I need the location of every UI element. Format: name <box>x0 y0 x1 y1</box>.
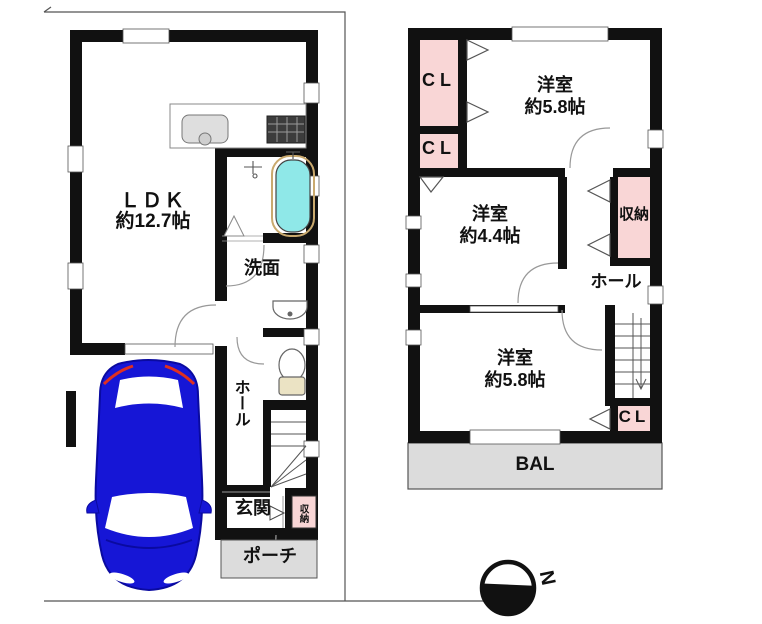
room-size-room-ne: 約5.8帖 <box>503 98 607 118</box>
bathroom <box>224 152 314 236</box>
room-label-storage-1f: 収納 <box>297 499 307 527</box>
floor2-stairs <box>615 313 650 398</box>
room-label-room-w: 洋室 <box>438 205 542 225</box>
room-label-room-ne: 洋室 <box>503 76 607 96</box>
floor1-stairs <box>271 422 306 487</box>
room-label-balcony: BAL <box>493 455 577 476</box>
bathtub <box>276 160 310 232</box>
bath-folding-door-marker <box>222 236 263 241</box>
room-label-closet-top: CL <box>418 71 460 91</box>
kitchen-counter <box>170 104 306 148</box>
room-label-closet-s: CL <box>614 408 654 427</box>
washbasin-icon <box>273 301 307 319</box>
room-size-room-s: 約5.8帖 <box>463 371 567 391</box>
floorplan-drawing <box>0 0 762 624</box>
shower-faucet-icon <box>244 161 262 178</box>
toilet-icon <box>279 349 305 395</box>
room-size-room-w: 約4.4帖 <box>438 227 542 247</box>
car-icon <box>87 360 212 590</box>
room-label-entrance: 玄関 <box>222 499 284 519</box>
room-label-room-s: 洋室 <box>463 349 567 369</box>
room-label-ldk: ＬＤＫ <box>88 190 218 212</box>
room-size-ldk: 約12.7帖 <box>88 212 218 233</box>
north-compass-icon <box>482 562 534 614</box>
room-label-closet-mid: CL <box>418 139 460 159</box>
room-label-hall-1f: ホール <box>231 366 249 440</box>
floor1-hall-door-opening <box>214 301 228 346</box>
floorplan-canvas: ＬＤＫ 約12.7帖 洗面 ホール 玄関 収納 ポーチ CL CL 洋室 約5.… <box>0 0 762 624</box>
room-label-washroom: 洗面 <box>228 259 296 279</box>
room-label-storage-2f: 収納 <box>616 207 652 224</box>
stove-icon <box>267 116 305 143</box>
room-label-porch: ポーチ <box>228 547 312 567</box>
room-label-hall-2f: ホール <box>578 273 654 292</box>
